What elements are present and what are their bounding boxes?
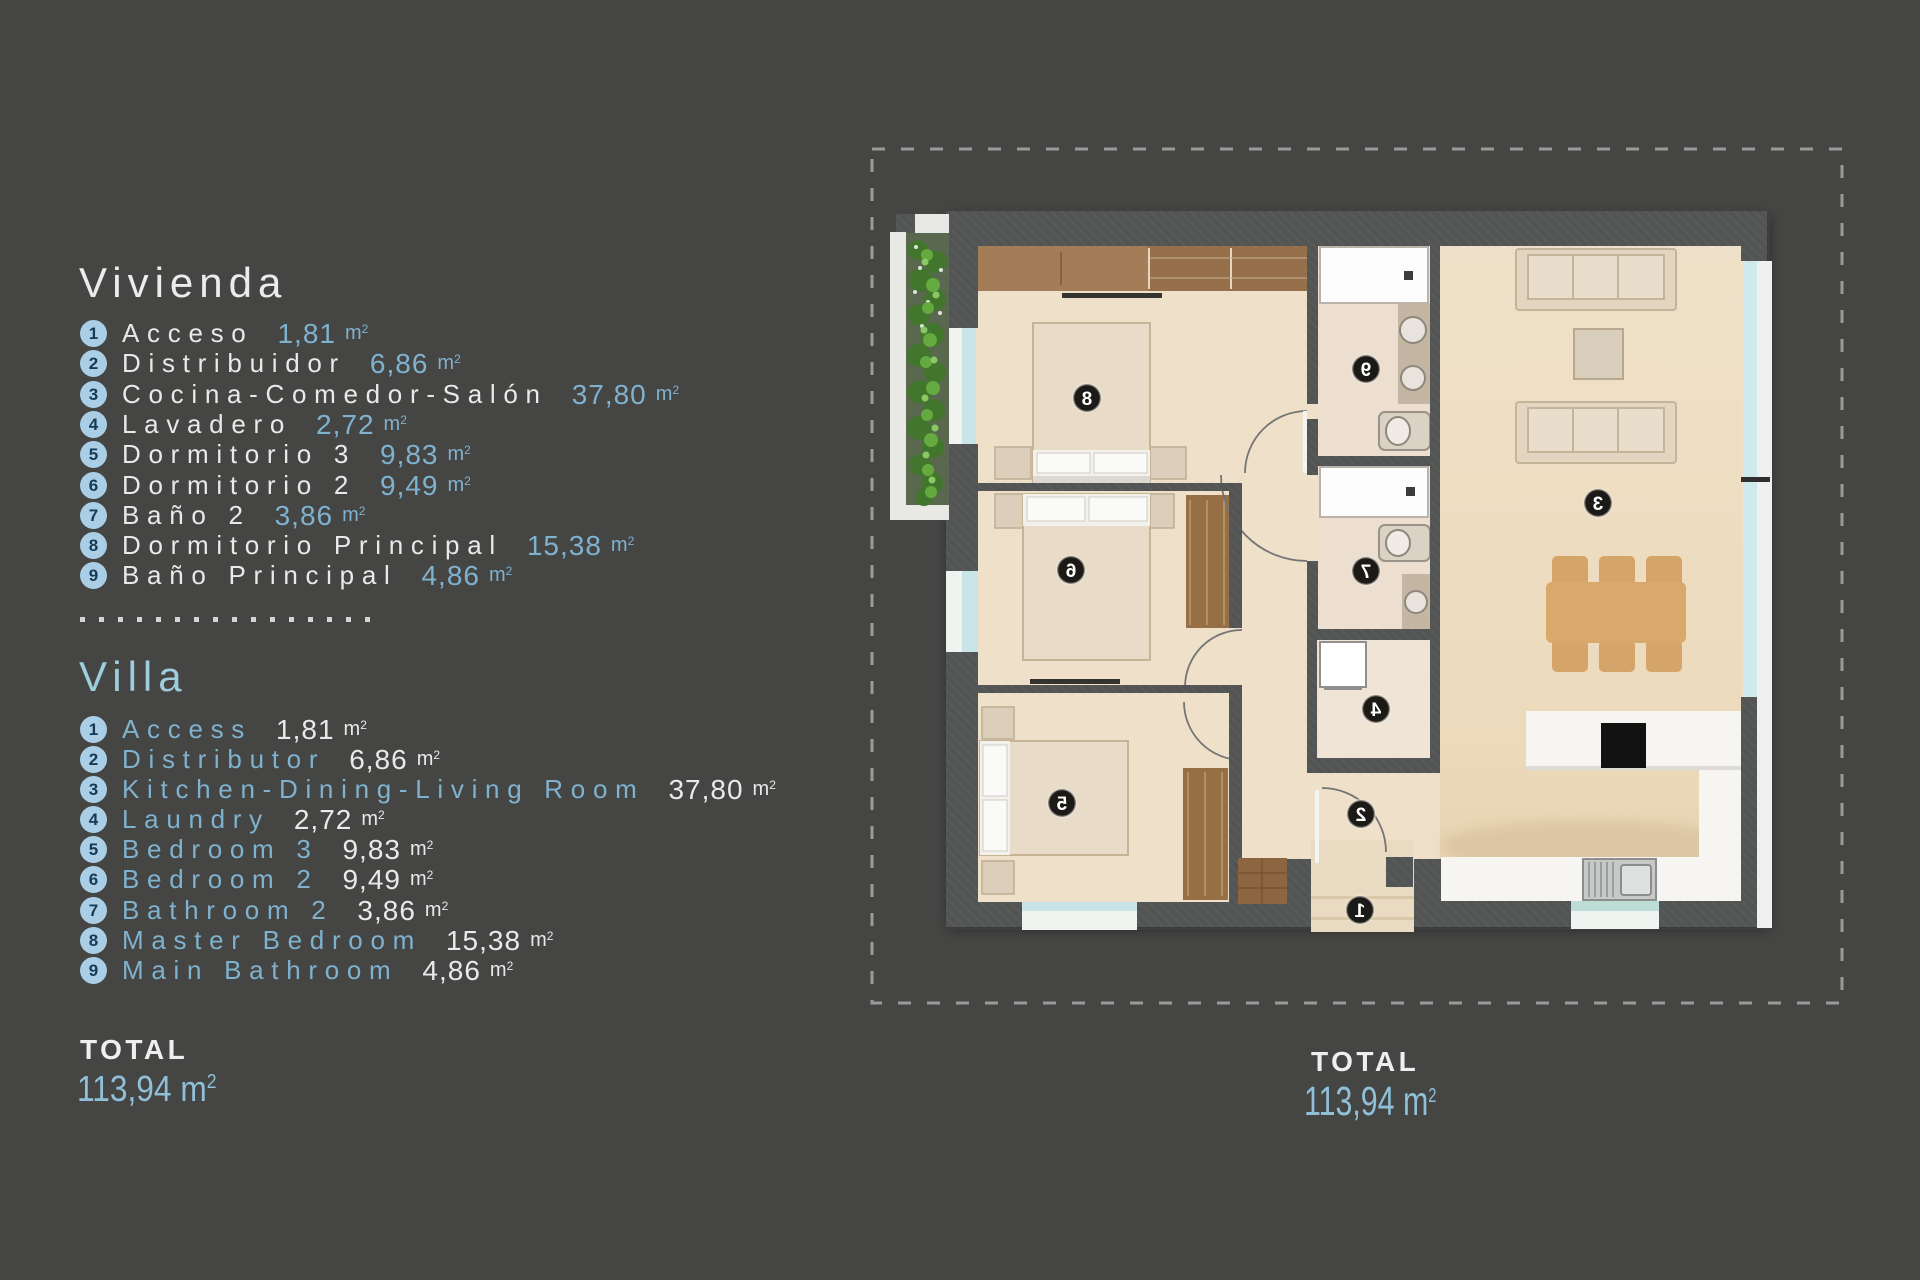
svg-text:8: 8 [1082,389,1093,410]
svg-text:4: 4 [1370,700,1381,721]
svg-text:2: 2 [1356,805,1367,826]
svg-text:1: 1 [1354,901,1365,922]
svg-text:6: 6 [1066,561,1077,582]
svg-text:7: 7 [1361,562,1372,583]
svg-text:3: 3 [1593,494,1604,515]
svg-text:5: 5 [1056,794,1067,815]
svg-text:9: 9 [1361,360,1372,381]
